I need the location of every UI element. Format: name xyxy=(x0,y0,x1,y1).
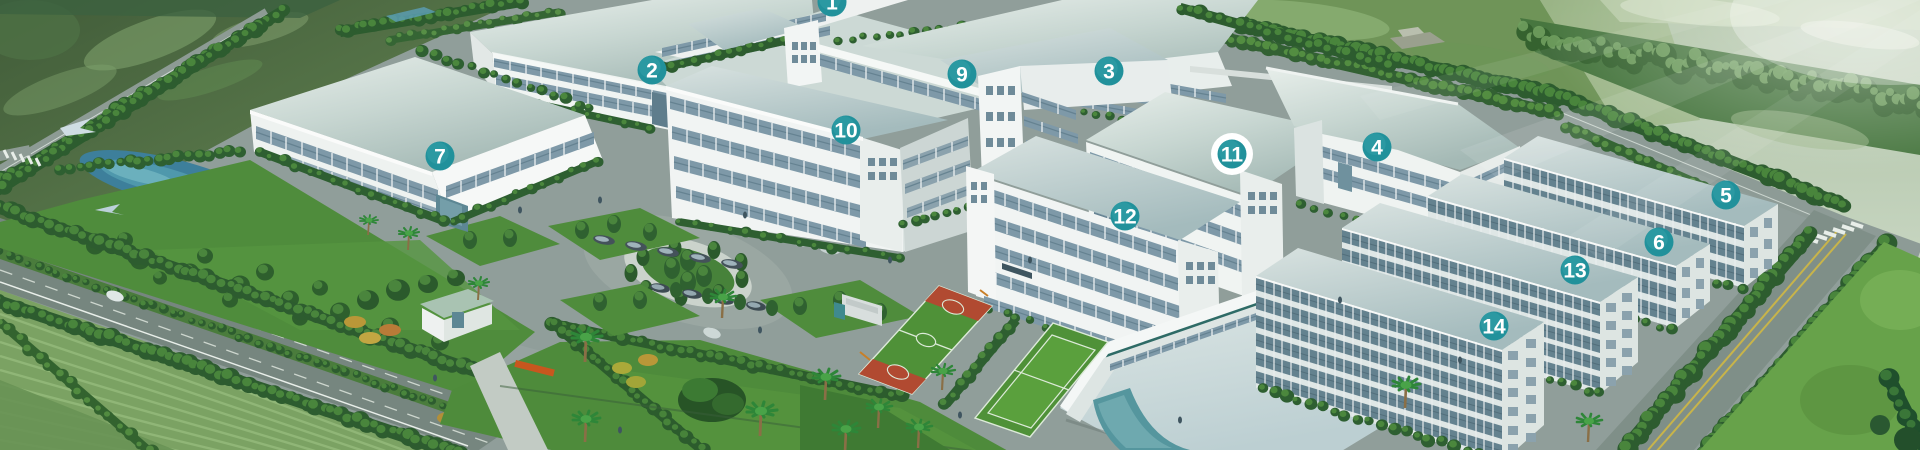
svg-text:3: 3 xyxy=(1103,61,1115,84)
svg-text:10: 10 xyxy=(834,120,857,143)
svg-text:13: 13 xyxy=(1563,260,1586,283)
svg-text:7: 7 xyxy=(434,146,446,169)
svg-text:6: 6 xyxy=(1653,232,1665,255)
svg-text:4: 4 xyxy=(1371,137,1383,160)
svg-text:11: 11 xyxy=(1221,144,1244,167)
svg-text:9: 9 xyxy=(956,64,968,87)
svg-text:12: 12 xyxy=(1113,206,1136,229)
svg-text:1: 1 xyxy=(826,0,838,15)
svg-text:5: 5 xyxy=(1720,185,1732,208)
svg-text:14: 14 xyxy=(1482,316,1506,339)
svg-text:2: 2 xyxy=(646,60,658,83)
